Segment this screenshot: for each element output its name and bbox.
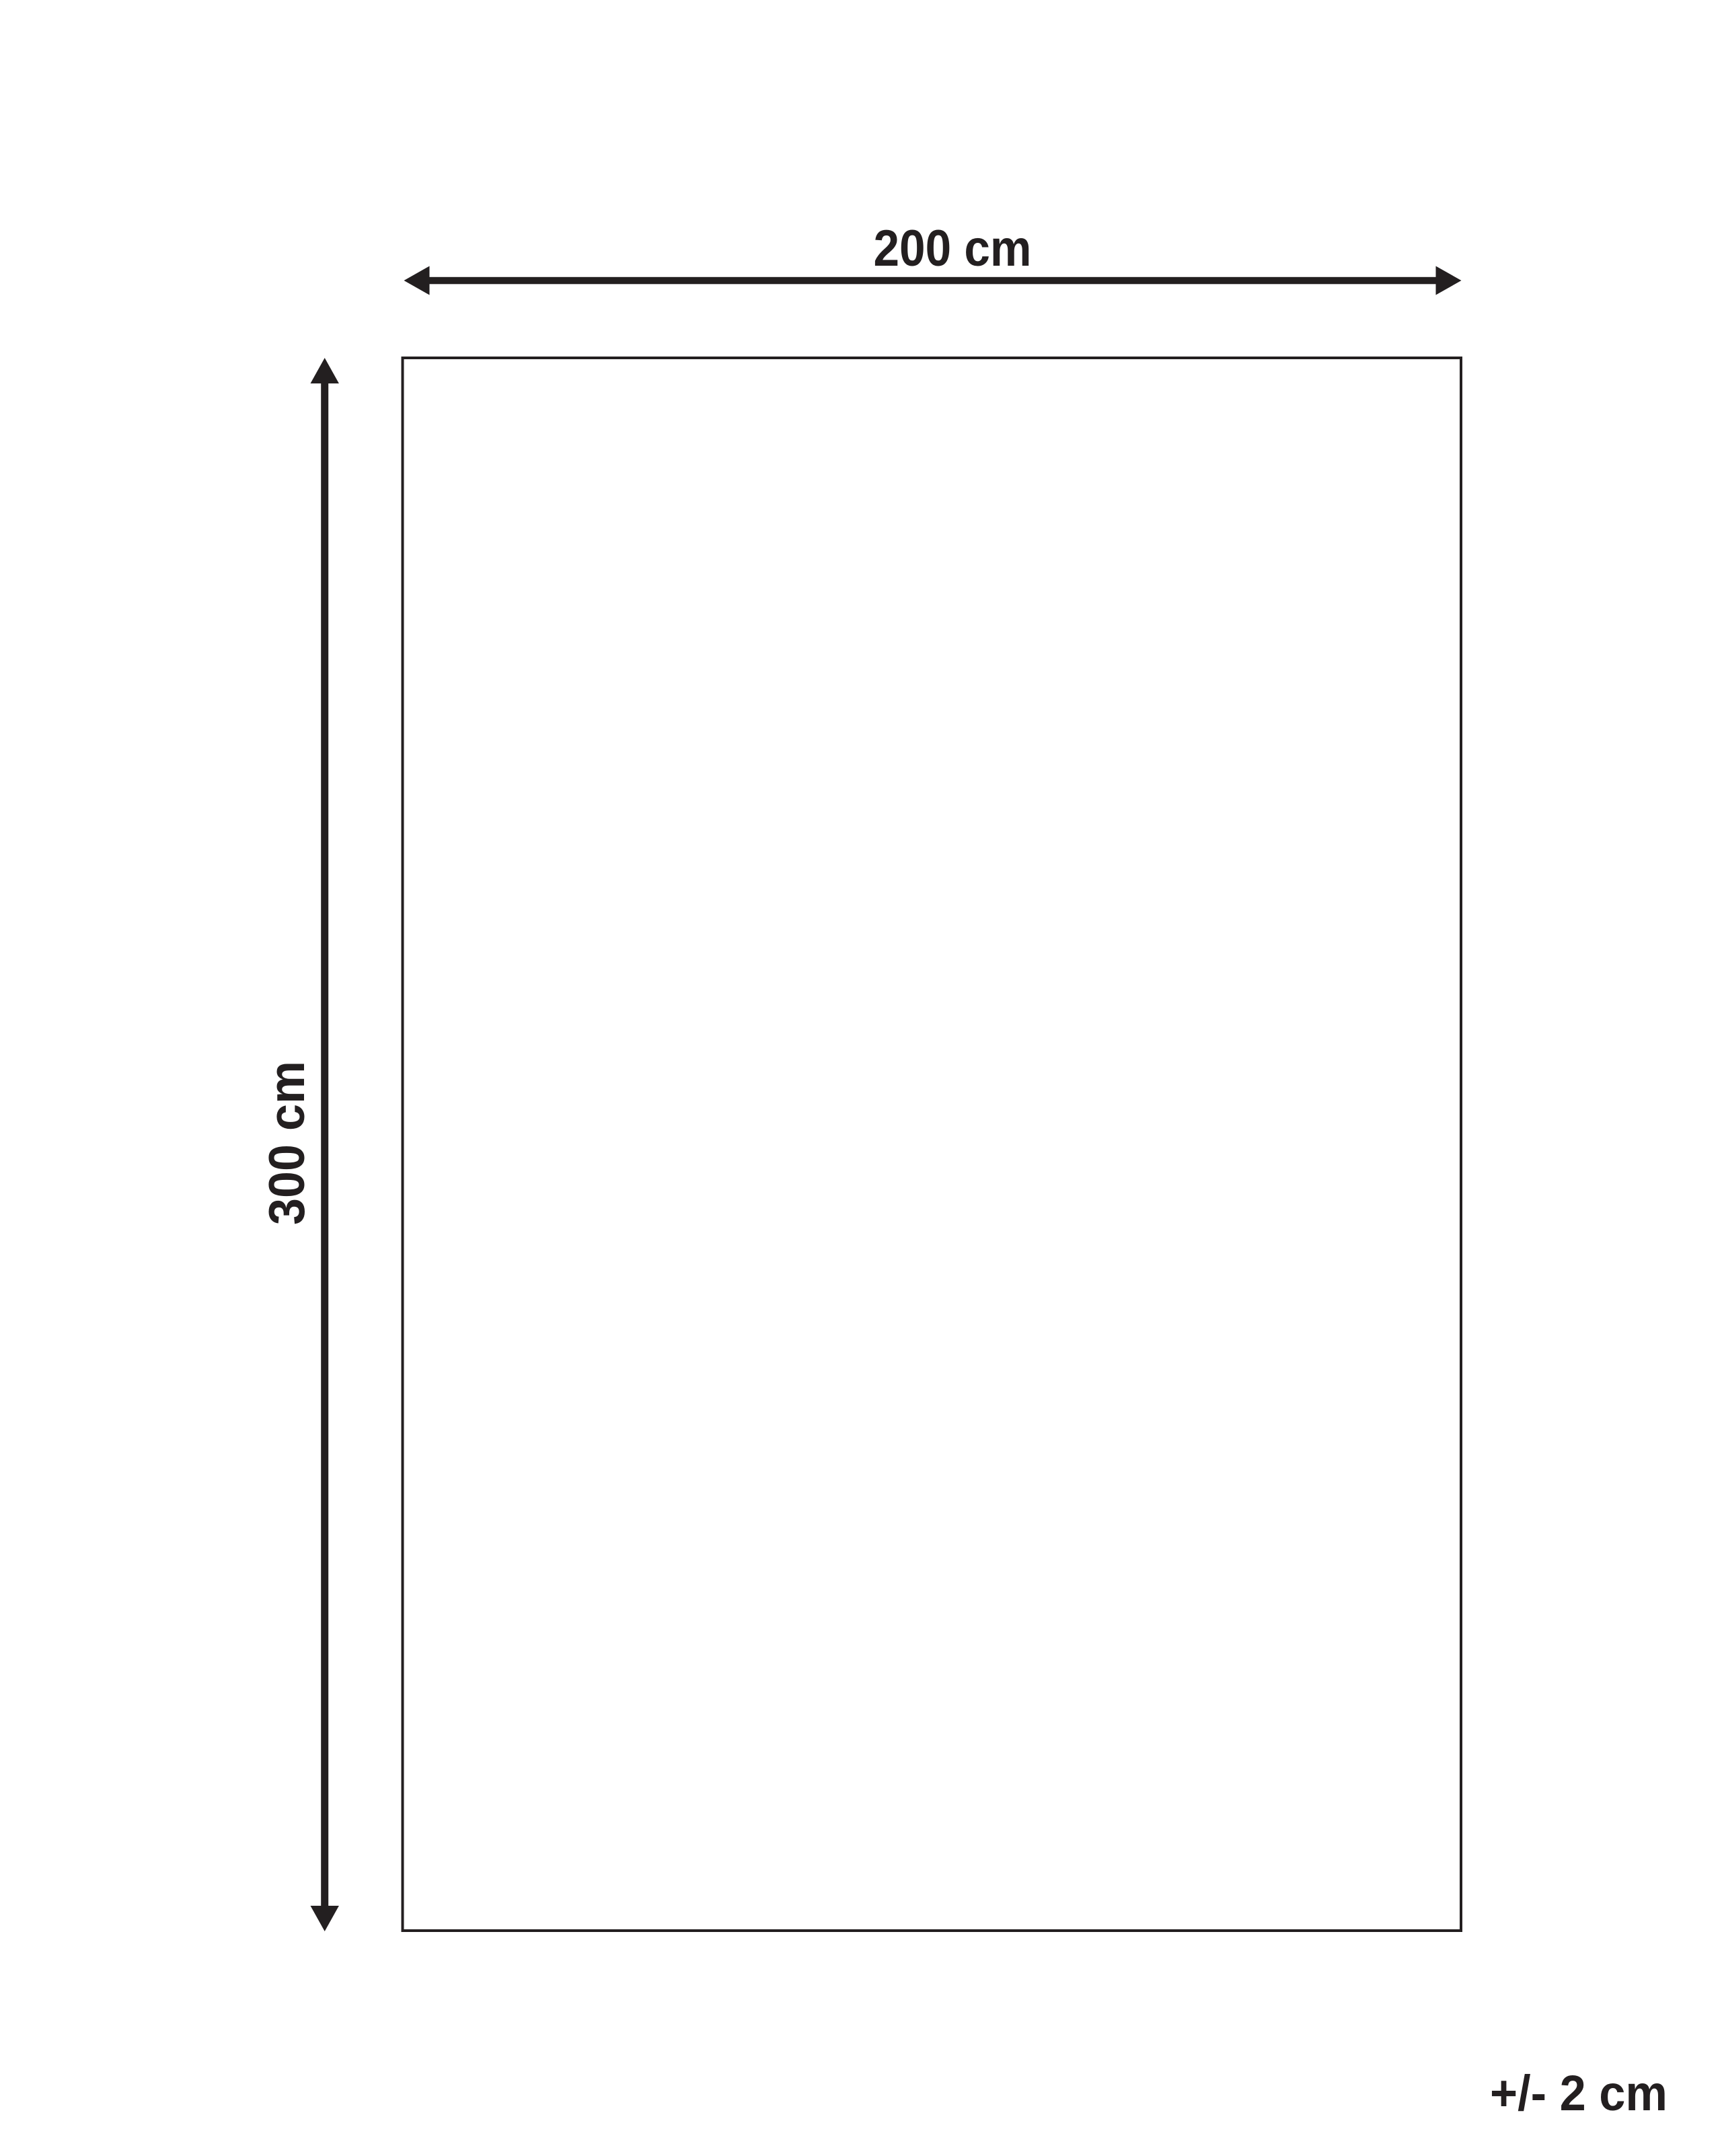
svg-text:+/- 2 cm: +/- 2 cm	[1490, 2065, 1668, 2121]
svg-text:200 cm: 200 cm	[874, 220, 1032, 277]
svg-text:300 cm: 300 cm	[258, 1061, 315, 1225]
